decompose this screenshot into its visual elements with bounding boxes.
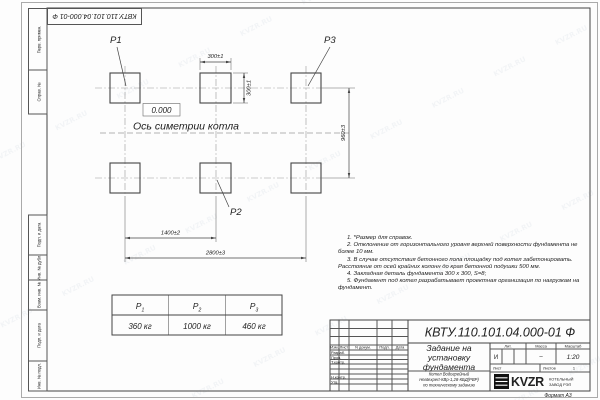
dim-overall: 2800±3	[205, 251, 226, 257]
svg-text:Р3: Р3	[250, 301, 259, 314]
load-table-text: Р1 Р2 Р3 360 кг 1000 кг 460 кг	[128, 301, 265, 331]
col-izm: Изм.	[330, 345, 338, 350]
lit-label: Лит.	[504, 344, 511, 349]
left-strip-labels: Перв. примен. Справ. № Подп. и дата Инв.…	[37, 26, 42, 389]
pad-label-p3: Р3	[324, 35, 336, 46]
left-strip-label: Подп. и дата	[37, 222, 42, 247]
left-strip-label: Инв. № подл.	[37, 363, 42, 389]
mass-value: –	[539, 355, 543, 361]
load-value-p2: 1000 кг	[183, 322, 211, 331]
sheets-total-label: Листов	[543, 366, 556, 371]
row-tkontr: Т.контр.	[331, 360, 345, 365]
pad-label-p2: Р2	[230, 207, 242, 218]
scale-label: Масштаб	[565, 344, 582, 349]
mass-label: Масса	[535, 344, 547, 349]
col-podp: Подп.	[379, 345, 389, 350]
kvzr-logo-text: KVZR	[511, 375, 544, 389]
drawing-sheet: KVZR.RUKVZR.RUKVZR.RUKVZR.RUKVZR.RUKVZR.…	[0, 0, 600, 400]
product-line: Котел Водогрейный	[429, 372, 470, 377]
left-strip-label: Перв. примен.	[37, 26, 42, 54]
pad-label-p1: Р1	[110, 35, 122, 46]
title-line: Задание на	[426, 343, 472, 353]
col-list: Лист	[340, 345, 349, 350]
note-item: 5. Фундамент под котел разрабатывает про…	[338, 278, 586, 292]
title-block-text: КВТУ.110.101.04.000-01 Ф Задание на уста…	[330, 326, 582, 390]
level-mark: 0.000	[151, 106, 172, 115]
load-value-p3: 460 кг	[242, 322, 265, 331]
dim-row-pitch: 960±3	[341, 124, 347, 141]
dimension-arrows	[125, 61, 350, 259]
dim-col-pitch: 1400±2	[161, 231, 181, 237]
left-strip-label: Инв. № дубл.	[37, 255, 42, 281]
axis-caption: Ось симетрии котла	[133, 121, 239, 133]
note-item: 2. Отклонение от горизонтального уровня …	[338, 242, 586, 256]
dim-pad-width: 300±1	[207, 54, 223, 60]
lit-value: И	[494, 355, 498, 361]
left-strip-label: Подп. и дата	[37, 322, 42, 347]
left-strip-label: Справ. №	[37, 82, 42, 102]
title-line: фундамента	[423, 362, 475, 372]
sheet-no-label: Лист	[493, 366, 502, 371]
company-caption-line: ЗАВОД РЭП	[549, 382, 571, 387]
company-caption-line: КОТЕЛЬНЫЙ	[549, 377, 574, 382]
top-doc-number: КВТУ.110.101.04.000-01 Ф	[52, 12, 137, 19]
format-label: Формат А3	[544, 393, 572, 399]
sheets-total-value: 1	[573, 366, 575, 371]
doc-number: КВТУ.110.101.04.000-01 Ф	[425, 326, 575, 340]
title-line: установку	[427, 353, 471, 363]
row-utv: Утв.	[331, 380, 338, 385]
sheet-svg: Перв. примен. Справ. № Подп. и дата Инв.…	[0, 0, 600, 400]
note-item: 3. В случае отсутствия бетонного пола пл…	[338, 257, 586, 271]
scale-value: 1:20	[567, 354, 580, 361]
dim-pad-height: 300±1	[247, 80, 253, 96]
load-value-p1: 360 кг	[128, 322, 151, 331]
product-line: по техническому заданию	[423, 383, 476, 388]
note-item: 4. Закладная деталь фундамента 300 х 300…	[338, 271, 586, 278]
left-strip-label: Взам. инв. №	[37, 282, 42, 308]
col-ndokum: N докум.	[355, 345, 371, 350]
dimension-lines	[125, 62, 349, 258]
col-data: Дата	[396, 345, 405, 350]
notes-block: 1. *Размер для справок. 2. Отклонение от…	[338, 235, 586, 293]
svg-text:Р2: Р2	[193, 301, 202, 314]
svg-text:Р1: Р1	[136, 301, 145, 314]
product-line: Heatexpert-КВр-1,28-КБД(РВР)	[419, 377, 479, 382]
